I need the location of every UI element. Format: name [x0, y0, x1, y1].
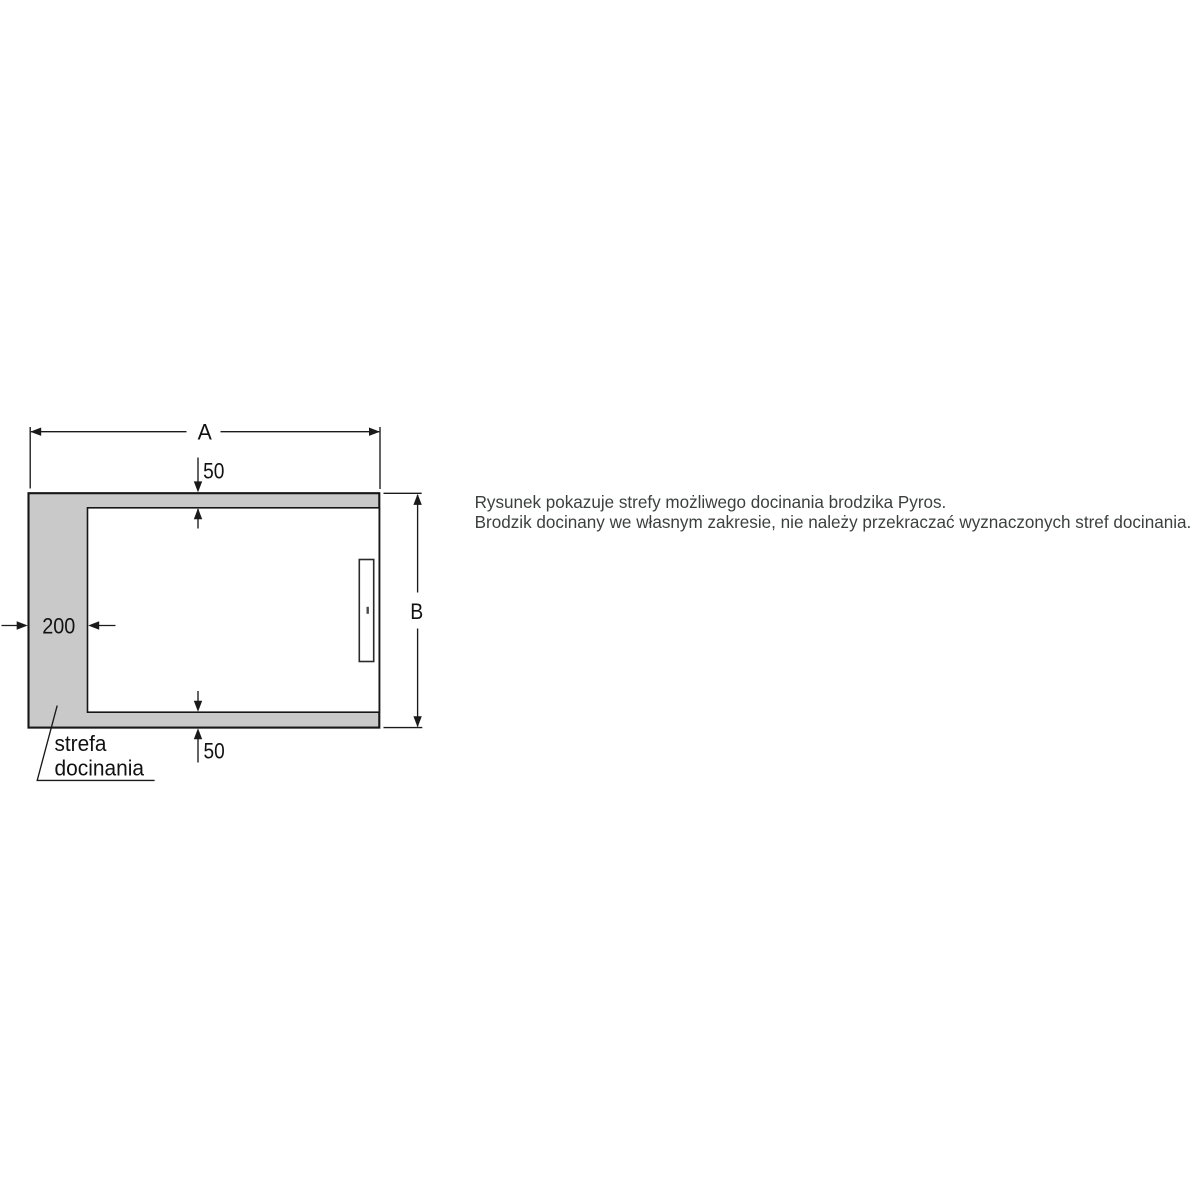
svg-text:A: A	[198, 420, 212, 445]
svg-text:strefa: strefa	[55, 731, 108, 756]
svg-text:200: 200	[42, 613, 75, 638]
svg-text:B: B	[410, 599, 423, 624]
svg-text:docinania: docinania	[55, 755, 145, 780]
svg-text:Rysunek pokazuje strefy możliw: Rysunek pokazuje strefy możliwego docina…	[475, 492, 947, 512]
svg-text:50: 50	[204, 738, 225, 763]
svg-text:50: 50	[203, 458, 224, 483]
svg-text:Brodzik docinany we własnym za: Brodzik docinany we własnym zakresie, ni…	[475, 512, 1192, 532]
